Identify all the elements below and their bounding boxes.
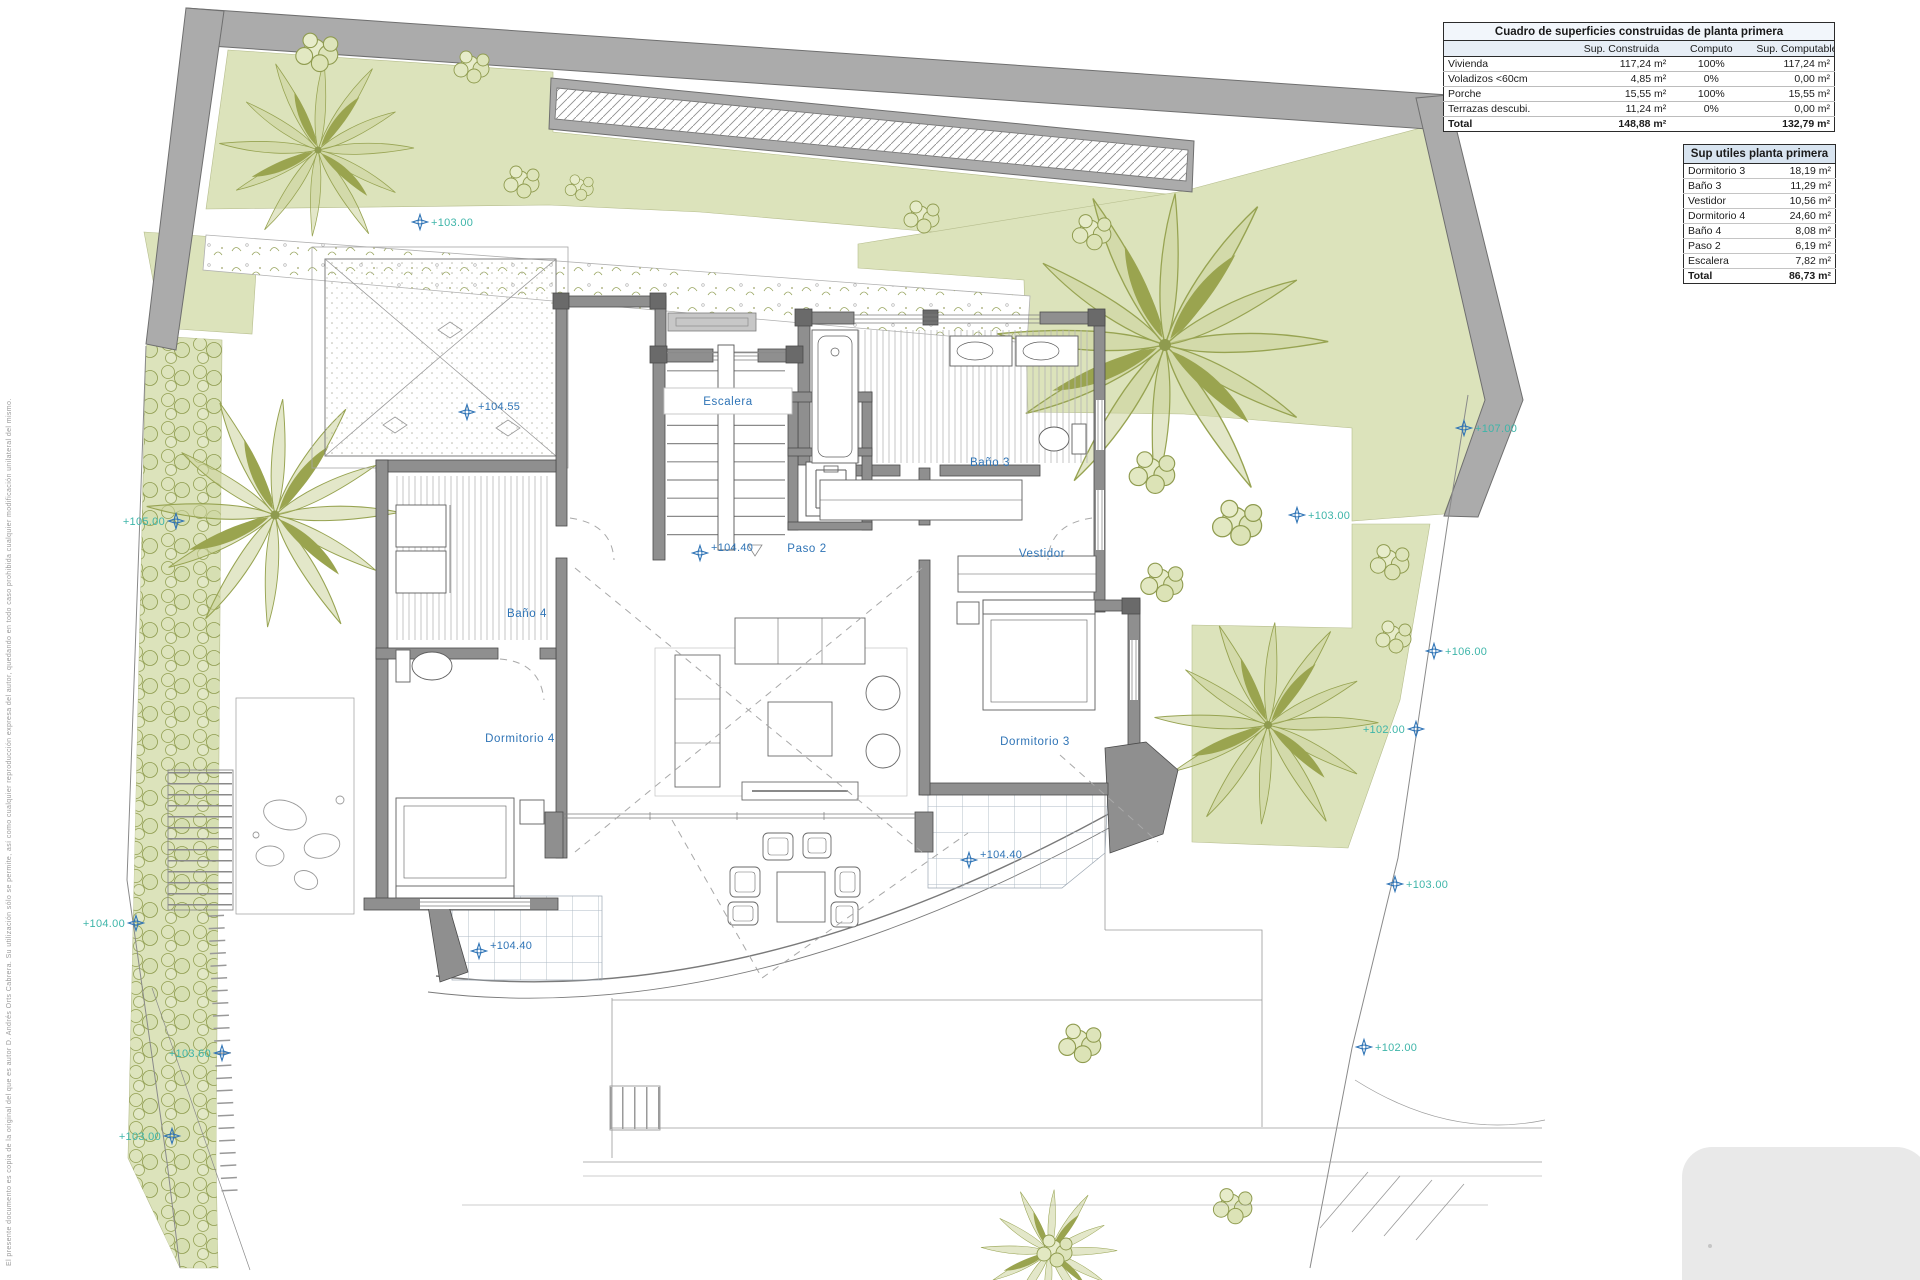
level-marker: +103.00 [1388, 877, 1449, 892]
level-marker: +103.00 [1290, 508, 1351, 523]
row-label: Voladizos <60cm [1444, 72, 1573, 87]
col-header-computo: Computo [1670, 41, 1752, 57]
row-value: 24,60 m² [1778, 209, 1836, 224]
drawing-sheet: Escalera Baño 3 Paso 2 Vestidor Baño 4 D… [0, 0, 1920, 1280]
total-computable: 132,79 m² [1752, 117, 1834, 132]
room-label-bano3: Baño 3 [970, 457, 1010, 469]
svg-text:+104.40: +104.40 [980, 849, 1022, 861]
table-row: Porche 15,55 m² 100% 15,55 m² [1444, 87, 1835, 102]
col-header-construida: Sup. Construida [1573, 41, 1671, 57]
row-computable: 0,00 m² [1752, 102, 1834, 117]
svg-text:+103.00: +103.00 [119, 1131, 161, 1143]
room-label-bano4: Baño 4 [507, 608, 547, 620]
row-construida: 15,55 m² [1573, 87, 1671, 102]
svg-text:+103.00: +103.00 [431, 217, 473, 229]
svg-text:+102.00: +102.00 [1375, 1042, 1417, 1054]
row-label: Dormitorio 4 [1684, 209, 1778, 224]
watermark-blob [1682, 1147, 1920, 1280]
row-label: Terrazas descubi. [1444, 102, 1573, 117]
table-row: Paso 2 6,19 m² [1684, 239, 1836, 254]
svg-text:+104.00: +104.00 [83, 918, 125, 930]
row-computo: 0% [1670, 102, 1752, 117]
row-label: Baño 4 [1684, 224, 1778, 239]
level-marker: +106.00 [1427, 644, 1488, 659]
row-computo: 0% [1670, 72, 1752, 87]
useful-surfaces-table: Sup utiles planta primera Dormitorio 3 1… [1683, 144, 1836, 284]
svg-text:+107.00: +107.00 [1475, 423, 1517, 435]
watermark-dot [1708, 1244, 1712, 1248]
table-row: Voladizos <60cm 4,85 m² 0% 0,00 m² [1444, 72, 1835, 87]
bed-dormitorio3 [957, 600, 1095, 710]
table-row: Baño 3 11,29 m² [1684, 179, 1836, 194]
room-label-escalera: Escalera [703, 396, 753, 408]
svg-text:+104.40: +104.40 [490, 940, 532, 952]
level-marker: +102.00 [1363, 722, 1424, 737]
useful-surfaces-title: Sup utiles planta primera [1684, 145, 1836, 164]
roof-area [312, 247, 568, 468]
svg-text:+103.00: +103.00 [1308, 510, 1350, 522]
svg-text:+105.00: +105.00 [123, 516, 165, 528]
wardrobes [820, 480, 1096, 592]
table-row: Vestidor 10,56 m² [1684, 194, 1836, 209]
svg-text:+103.00: +103.00 [1406, 879, 1448, 891]
row-construida: 117,24 m² [1573, 57, 1671, 72]
total-label: Total [1444, 117, 1573, 132]
row-value: 8,08 m² [1778, 224, 1836, 239]
room-label-vestidor: Vestidor [1019, 548, 1065, 560]
row-label: Dormitorio 3 [1684, 164, 1778, 179]
row-label: Escalera [1684, 254, 1778, 269]
total-computo [1670, 117, 1752, 132]
level-marker: +103.60 [169, 1046, 230, 1061]
table-row: Baño 4 8,08 m² [1684, 224, 1836, 239]
table-row: Terrazas descubi. 11,24 m² 0% 0,00 m² [1444, 102, 1835, 117]
row-value: 7,82 m² [1778, 254, 1836, 269]
row-computable: 0,00 m² [1752, 72, 1834, 87]
total-construida: 148,88 m² [1573, 117, 1671, 132]
row-computable: 15,55 m² [1752, 87, 1834, 102]
room-label-paso2: Paso 2 [787, 543, 826, 555]
col-header-computable: Sup. Computable [1752, 41, 1834, 57]
built-surfaces-table: Cuadro de superficies construidas de pla… [1443, 22, 1835, 132]
svg-text:+104.40: +104.40 [711, 542, 753, 554]
living-furniture [655, 618, 907, 800]
table-row: Dormitorio 4 24,60 m² [1684, 209, 1836, 224]
row-construida: 11,24 m² [1573, 102, 1671, 117]
row-computable: 117,24 m² [1752, 57, 1834, 72]
room-label-dormitorio4: Dormitorio 4 [485, 733, 555, 745]
level-marker: +103.00 [413, 215, 474, 230]
row-construida: 4,85 m² [1573, 72, 1671, 87]
row-computo: 100% [1670, 87, 1752, 102]
svg-text:+106.00: +106.00 [1445, 646, 1487, 658]
terrace-furniture [728, 833, 860, 927]
svg-text:+103.60: +103.60 [169, 1048, 211, 1060]
entry-canopy [668, 313, 756, 331]
svg-text:+102.00: +102.00 [1363, 724, 1405, 736]
level-marker: +104.40 [693, 542, 754, 561]
level-marker: +102.00 [1357, 1040, 1418, 1055]
row-computo: 100% [1670, 57, 1752, 72]
site-plan: Escalera Baño 3 Paso 2 Vestidor Baño 4 D… [0, 0, 1920, 1280]
room-label-dormitorio3: Dormitorio 3 [1000, 736, 1070, 748]
total-value: 86,73 m² [1778, 269, 1836, 284]
row-value: 18,19 m² [1778, 164, 1836, 179]
col-header-empty [1444, 41, 1573, 57]
row-value: 10,56 m² [1778, 194, 1836, 209]
table-total-row: Total 148,88 m² 132,79 m² [1444, 117, 1835, 132]
bed-dormitorio4 [396, 798, 544, 898]
row-label: Vestidor [1684, 194, 1778, 209]
row-label: Baño 3 [1684, 179, 1778, 194]
interior-stair [664, 345, 792, 556]
row-value: 11,29 m² [1778, 179, 1836, 194]
row-value: 6,19 m² [1778, 239, 1836, 254]
row-label: Porche [1444, 87, 1573, 102]
copyright-side-note: El presente documento es copia de la ori… [6, 116, 13, 1266]
table-row: Dormitorio 3 18,19 m² [1684, 164, 1836, 179]
total-label: Total [1684, 269, 1778, 284]
row-label: Vivienda [1444, 57, 1573, 72]
rock-garden [236, 698, 354, 914]
table-row: Vivienda 117,24 m² 100% 117,24 m² [1444, 57, 1835, 72]
row-label: Paso 2 [1684, 239, 1778, 254]
table-total-row: Total 86,73 m² [1684, 269, 1836, 284]
svg-text:+104.55: +104.55 [478, 401, 520, 413]
table-row: Escalera 7,82 m² [1684, 254, 1836, 269]
built-surfaces-title: Cuadro de superficies construidas de pla… [1444, 23, 1835, 41]
